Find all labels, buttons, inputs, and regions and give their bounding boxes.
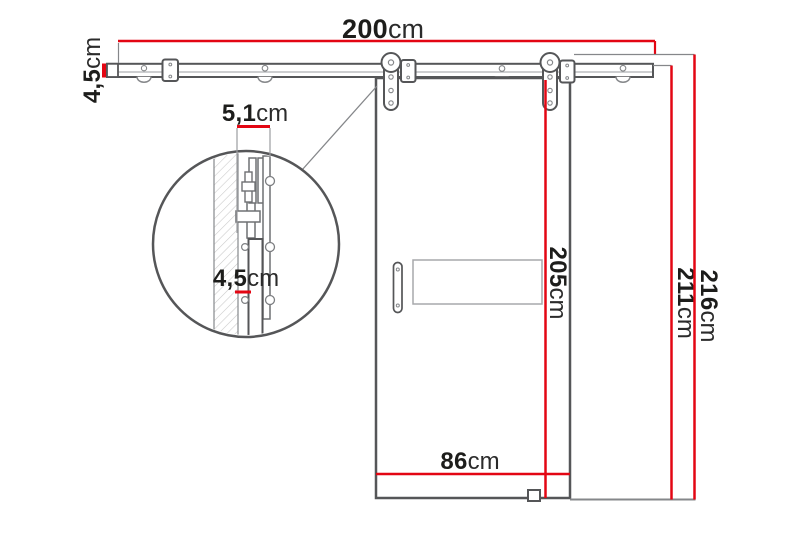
door-handle — [394, 263, 403, 313]
dim-216-label: 216cm — [695, 270, 722, 343]
diagram-stage: 5,1cm 4,5cm 200cm 4,5cm 205cm 86cm 211cm… — [0, 0, 800, 533]
bracket-screw — [169, 63, 172, 66]
bolt-head — [266, 243, 275, 252]
bracket-screw — [169, 75, 172, 78]
rail-bracket-section — [236, 211, 260, 222]
floor-guide — [528, 490, 540, 501]
door-panel — [376, 78, 570, 501]
mount-bump — [137, 77, 151, 83]
bolt-head — [242, 244, 249, 251]
door-outline — [376, 78, 570, 498]
strap-screw — [548, 88, 552, 92]
strap-screw — [389, 75, 393, 79]
bolt-head — [242, 297, 249, 304]
clamp-screw — [566, 64, 569, 67]
wall-section — [214, 148, 238, 343]
clamp-screw — [407, 64, 410, 67]
mount-screw — [499, 66, 505, 72]
strap-screw — [548, 101, 552, 105]
dim-5-1-label: 5,1cm — [222, 100, 288, 127]
clamp-screw — [566, 77, 569, 80]
mount-bump — [616, 77, 630, 83]
dim-86-label: 86cm — [440, 448, 499, 475]
sliding-door-diagram: 5,1cm 4,5cm 200cm 4,5cm 205cm 86cm 211cm… — [0, 0, 800, 533]
strap-screw — [389, 101, 393, 105]
dim-4-5-label: 4,5cm — [79, 37, 106, 103]
handle-screw — [396, 304, 399, 307]
dim-205-label: 205cm — [544, 247, 571, 320]
bolt-head — [266, 296, 275, 305]
dim-rail-height: 4,5cm — [79, 37, 106, 103]
mount-screw — [262, 65, 268, 71]
roller-hub — [388, 60, 393, 65]
dim-height-under-rail: 211cm — [653, 66, 699, 500]
clamp-screw — [407, 76, 410, 79]
mount-screw — [620, 65, 626, 71]
strap-screw — [389, 88, 393, 92]
handle-screw — [396, 268, 399, 271]
bolt-head — [266, 177, 275, 186]
roller-axle-cross — [242, 182, 255, 191]
dim-4-5-detail-label: 4,5cm — [213, 265, 279, 292]
detail-leader-line — [302, 86, 377, 170]
detail-callout: 5,1cm 4,5cm — [153, 86, 377, 343]
roller-hub — [547, 60, 552, 65]
dim-total-height: 216cm — [574, 55, 722, 500]
rail-end-stop — [107, 64, 118, 77]
dim-200-label: 200cm — [342, 14, 424, 44]
mount-screw — [141, 66, 146, 71]
mount-bump — [258, 77, 272, 83]
rail-clamp-bracket — [163, 60, 179, 82]
strap-screw — [548, 75, 552, 79]
